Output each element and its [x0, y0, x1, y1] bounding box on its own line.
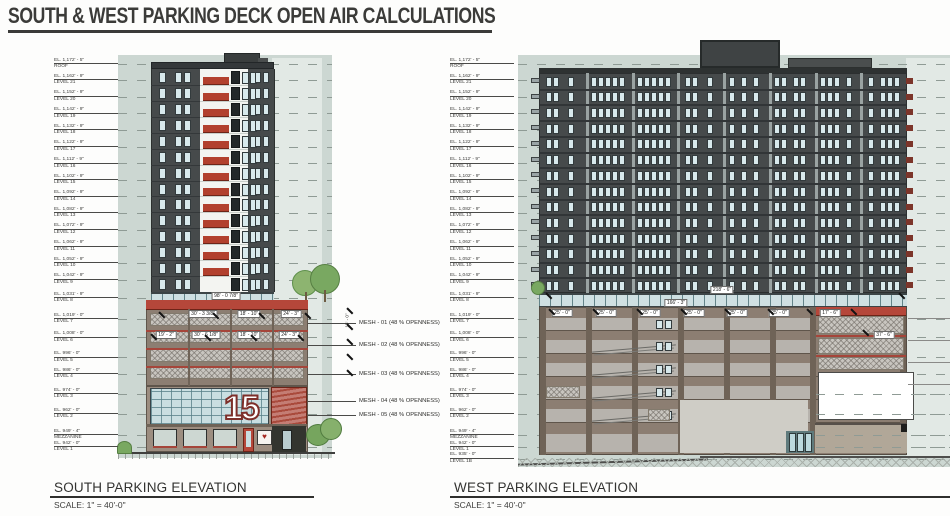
window [880, 187, 886, 197]
window [827, 108, 833, 118]
window [753, 171, 759, 181]
window [242, 263, 249, 275]
window [868, 92, 874, 102]
south-deck-parapet-red [146, 300, 308, 310]
window [263, 247, 269, 258]
window [263, 263, 269, 274]
window [741, 234, 747, 244]
window [159, 263, 166, 274]
window [159, 152, 166, 163]
window [665, 77, 671, 87]
level-name-text: LEVEL 7 [450, 319, 514, 325]
window [612, 187, 618, 197]
window [834, 124, 840, 134]
level-label: EL. 996' - 0"LEVEL 5 [54, 351, 118, 363]
window [546, 218, 552, 228]
level-label: EL. 1,042' - 9"LEVEL 9 [54, 273, 118, 285]
window [729, 77, 735, 87]
window [612, 124, 618, 134]
level-name-text: LEVEL 19 [54, 114, 118, 120]
window [729, 171, 735, 181]
window [868, 108, 874, 118]
window [800, 92, 806, 102]
window [591, 234, 597, 244]
window [605, 187, 611, 197]
window [605, 249, 611, 259]
level-label: EL. 935' - 0"LEVEL 1B [450, 452, 514, 464]
window [184, 279, 191, 290]
window [753, 139, 759, 149]
window [553, 139, 559, 149]
level-label: EL. 1,142' - 9"LEVEL 19 [450, 107, 514, 119]
window [800, 218, 806, 228]
window [242, 184, 249, 196]
window [774, 234, 780, 244]
balcony-red [203, 268, 229, 276]
window [685, 265, 691, 275]
window [184, 231, 191, 242]
shop-window-sill [183, 446, 207, 448]
level-label: EL. 996' - 0"LEVEL 5 [450, 351, 514, 363]
window [568, 234, 574, 244]
window [685, 202, 691, 212]
window [568, 187, 574, 197]
window [255, 168, 261, 179]
window [159, 104, 166, 115]
window [729, 92, 735, 102]
window [658, 155, 664, 165]
level-label: EL. 986' - 0"LEVEL 4 [54, 368, 118, 380]
window [242, 120, 249, 132]
window [658, 265, 664, 275]
window [692, 249, 698, 259]
window [707, 171, 713, 181]
mesh-patch [648, 409, 670, 421]
window [834, 139, 840, 149]
window [605, 108, 611, 118]
window [741, 265, 747, 275]
window [553, 249, 559, 259]
window [568, 92, 574, 102]
window [707, 92, 713, 102]
west-view-caption: WEST PARKING ELEVATION SCALE: 1" = 40'-0… [450, 479, 950, 510]
window [591, 187, 597, 197]
window [774, 202, 780, 212]
level-label: EL. 1,008' - 0"LEVEL 6 [54, 331, 118, 343]
window [692, 218, 698, 228]
window [665, 388, 672, 397]
window [868, 249, 874, 259]
south-floor-line-dark [151, 133, 200, 134]
level-name-text: LEVEL 12 [54, 230, 118, 236]
window-dark [231, 230, 240, 243]
balcony-red [203, 157, 229, 165]
window [658, 92, 664, 102]
left-balcony-tab [531, 204, 540, 209]
window [707, 77, 713, 87]
window [800, 171, 806, 181]
window [827, 234, 833, 244]
west-view-title: WEST PARKING ELEVATION [450, 480, 950, 498]
window [692, 202, 698, 212]
level-label: EL. 1,062' - 9"LEVEL 11 [450, 240, 514, 252]
window [729, 202, 735, 212]
window [598, 139, 604, 149]
deck-column [586, 307, 592, 455]
level-name-text: LEVEL 8 [450, 298, 514, 304]
window [184, 104, 191, 115]
window [665, 342, 672, 351]
window [793, 139, 799, 149]
west-floor-line [540, 167, 906, 169]
window [846, 234, 852, 244]
south-floor-line-dark [151, 85, 200, 86]
window [591, 155, 597, 165]
level-label: EL. 974' - 0"LEVEL 3 [450, 388, 514, 400]
window [159, 168, 166, 179]
window [846, 249, 852, 259]
window [546, 234, 552, 244]
west-floor-line [540, 230, 906, 232]
window [637, 124, 643, 134]
south-floor-line [200, 101, 248, 102]
right-balcony-tab [906, 125, 913, 131]
window [887, 171, 893, 181]
window [175, 263, 182, 274]
window [637, 202, 643, 212]
window [887, 92, 893, 102]
window [553, 187, 559, 197]
level-label: EL. 1,008' - 0"LEVEL 6 [450, 331, 514, 343]
window [753, 249, 759, 259]
right-balcony-tab [906, 235, 913, 241]
west-floor-line [540, 89, 906, 91]
window [553, 77, 559, 87]
window [827, 139, 833, 149]
window [591, 139, 597, 149]
window [800, 139, 806, 149]
south-floor-line [200, 85, 248, 86]
window [894, 171, 900, 181]
window [887, 155, 893, 165]
level-name-text: LEVEL 8 [54, 298, 118, 304]
level-name-text: LEVEL 17 [54, 147, 118, 153]
level-name-text: LEVEL 5 [54, 358, 118, 364]
level-label: EL. 974' - 0"LEVEL 3 [54, 388, 118, 400]
window [644, 281, 650, 291]
window [880, 77, 886, 87]
window [846, 265, 852, 275]
tree-trunk [324, 290, 326, 302]
window [880, 171, 886, 181]
south-floor-line-dark [151, 101, 200, 102]
window [820, 187, 826, 197]
window [692, 171, 698, 181]
window [868, 124, 874, 134]
door-glass [246, 431, 251, 447]
window [887, 234, 893, 244]
window [800, 202, 806, 212]
mesh-panel [818, 357, 904, 370]
window [800, 281, 806, 291]
left-balcony-tab [531, 109, 540, 114]
window [894, 234, 900, 244]
amenity-shrub [531, 281, 545, 295]
window [242, 104, 249, 116]
window [598, 202, 604, 212]
window [658, 202, 664, 212]
window [263, 279, 269, 290]
west-floor-line [540, 183, 906, 185]
window [887, 202, 893, 212]
south-tower-parapet [151, 62, 274, 69]
window [644, 218, 650, 228]
window [774, 124, 780, 134]
window [894, 77, 900, 87]
level-label: EL. 1,122' - 9"LEVEL 17 [450, 140, 514, 152]
window [159, 215, 166, 226]
window [685, 249, 691, 259]
window [868, 171, 874, 181]
window [827, 77, 833, 87]
window [591, 265, 597, 275]
level-name-text: ROOF [450, 64, 514, 70]
mesh-note: MESH - 02 (48 % OPENNESS) [359, 342, 440, 348]
window [753, 108, 759, 118]
window [894, 108, 900, 118]
window [741, 187, 747, 197]
window [255, 184, 261, 195]
door-pane [789, 433, 796, 452]
window [741, 77, 747, 87]
window [598, 124, 604, 134]
shop-window-sill [153, 446, 177, 448]
window [774, 249, 780, 259]
window [820, 77, 826, 87]
deck-column [540, 307, 546, 455]
window [887, 265, 893, 275]
right-balcony-tab [906, 282, 913, 288]
window [665, 171, 671, 181]
window [868, 234, 874, 244]
window [834, 92, 840, 102]
window [553, 171, 559, 181]
window [184, 247, 191, 258]
left-balcony-tab [531, 157, 540, 162]
heart-logo-sign: ♥ [257, 430, 272, 445]
window [568, 202, 574, 212]
ground-tree [320, 418, 342, 440]
window [184, 199, 191, 210]
window [729, 218, 735, 228]
window [707, 218, 713, 228]
window [605, 281, 611, 291]
window [591, 92, 597, 102]
window [568, 171, 574, 181]
window [894, 281, 900, 291]
window [637, 187, 643, 197]
window [665, 108, 671, 118]
window [793, 234, 799, 244]
window [546, 92, 552, 102]
window [619, 124, 625, 134]
window [568, 281, 574, 291]
window [692, 139, 698, 149]
dark-entry-door [282, 430, 292, 450]
window [685, 234, 691, 244]
window [793, 249, 799, 259]
window [820, 124, 826, 134]
window [887, 249, 893, 259]
window [605, 124, 611, 134]
window [546, 139, 552, 149]
window [605, 202, 611, 212]
window-dark [231, 262, 240, 275]
right-balcony-tab [906, 204, 913, 210]
window [263, 231, 269, 242]
window [637, 234, 643, 244]
window [658, 187, 664, 197]
window [175, 104, 182, 115]
window [894, 249, 900, 259]
level-elevation-text: EL. 996' - 0" [54, 351, 118, 358]
window [834, 265, 840, 275]
window [658, 218, 664, 228]
window [598, 249, 604, 259]
window [568, 155, 574, 165]
window [781, 281, 787, 291]
level-name-text: LEVEL 10 [450, 263, 514, 269]
window [793, 77, 799, 87]
window [774, 108, 780, 118]
window [793, 202, 799, 212]
level-label: EL. 1,162' - 9"LEVEL 21 [54, 74, 118, 86]
south-floor-line-dark [151, 212, 200, 213]
level-name-text: LEVEL 15 [54, 180, 118, 186]
window [741, 155, 747, 165]
window [598, 281, 604, 291]
window [800, 249, 806, 259]
level-name-text: LEVEL 12 [450, 230, 514, 236]
level-label: EL. 1,142' - 9"LEVEL 19 [54, 107, 118, 119]
level-label: EL. 986' - 0"LEVEL 4 [450, 368, 514, 380]
window [685, 155, 691, 165]
level-name-text: LEVEL 1 [54, 447, 118, 453]
mesh-note-leader [308, 401, 356, 402]
level-name-text: LEVEL 4 [54, 374, 118, 380]
south-floor-line [200, 165, 248, 166]
window [827, 281, 833, 291]
window [707, 265, 713, 275]
window [644, 92, 650, 102]
window [598, 187, 604, 197]
drawing-sheet: SOUTH & WEST PARKING DECK OPEN AIR CALCU… [0, 0, 950, 516]
window [242, 152, 249, 164]
window [774, 187, 780, 197]
window [781, 187, 787, 197]
level-name-text: LEVEL 2 [450, 414, 514, 420]
window [820, 92, 826, 102]
west-roof-low-box [788, 58, 872, 68]
right-balcony-tab [906, 78, 913, 84]
window [242, 247, 249, 259]
window [553, 124, 559, 134]
balcony-red [203, 125, 229, 133]
level-elevation-text: EL. 1,092' - 9" [54, 190, 118, 197]
clipped-leader [908, 340, 950, 341]
window [637, 108, 643, 118]
window [880, 155, 886, 165]
window [880, 124, 886, 134]
west-floor-line [540, 262, 906, 264]
dimension-tag: 98' - 0 7/8" [212, 292, 241, 300]
window [651, 187, 657, 197]
window [820, 171, 826, 181]
window [692, 77, 698, 87]
window [591, 171, 597, 181]
level-label: EL. 1,092' - 9"LEVEL 14 [450, 190, 514, 202]
window [619, 218, 625, 228]
window [598, 77, 604, 87]
level-dash-overlay [816, 447, 950, 448]
south-floor-line [200, 260, 248, 261]
window [894, 124, 900, 134]
window [729, 124, 735, 134]
window [553, 281, 559, 291]
left-balcony-tab [531, 219, 540, 224]
window [665, 124, 671, 134]
balcony-red [203, 93, 229, 101]
window [644, 171, 650, 181]
window [685, 171, 691, 181]
deck-joint [272, 309, 274, 386]
window [175, 168, 182, 179]
shop-window-sill [213, 446, 237, 448]
level-label: EL. 1,122' - 9"LEVEL 17 [54, 140, 118, 152]
south-floor-line-dark [151, 165, 200, 166]
window [846, 155, 852, 165]
window [651, 249, 657, 259]
dimension-tag: 18' - 10" [237, 310, 260, 318]
window [781, 265, 787, 275]
west-floor-line [540, 136, 906, 138]
window [781, 77, 787, 87]
window [887, 218, 893, 228]
level-label: EL. 1,082' - 9"LEVEL 13 [54, 207, 118, 219]
mesh-note-leader [308, 374, 356, 375]
window [887, 281, 893, 291]
window [546, 281, 552, 291]
window [834, 171, 840, 181]
window [568, 77, 574, 87]
window [894, 265, 900, 275]
window [159, 247, 166, 258]
window [612, 249, 618, 259]
window [263, 152, 269, 163]
window [651, 281, 657, 291]
window [255, 231, 261, 242]
window [598, 234, 604, 244]
window [159, 136, 166, 147]
window [255, 120, 261, 131]
deck-column [632, 307, 638, 455]
window [834, 249, 840, 259]
window [553, 92, 559, 102]
clipped-leader [908, 362, 950, 363]
window [546, 124, 552, 134]
window [827, 155, 833, 165]
left-balcony-tab [531, 172, 540, 177]
